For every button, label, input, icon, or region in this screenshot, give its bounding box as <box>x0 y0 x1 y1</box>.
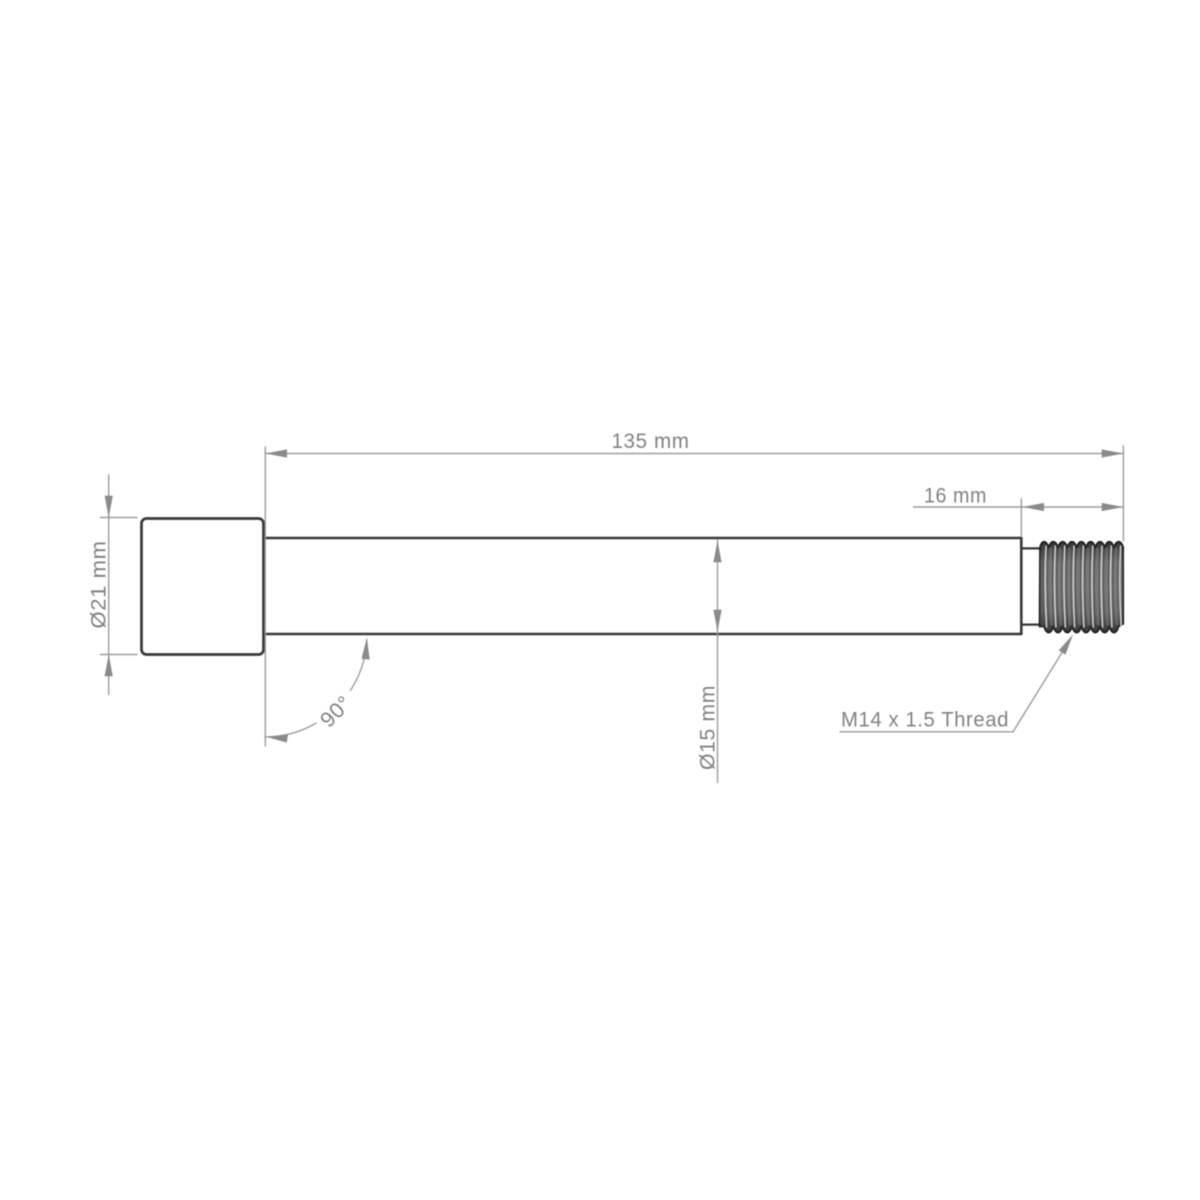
svg-text:M14 x 1.5 Thread: M14 x 1.5 Thread <box>841 708 1009 732</box>
svg-text:90°: 90° <box>315 691 356 732</box>
svg-text:Ø15 mm: Ø15 mm <box>696 685 720 770</box>
svg-text:16 mm: 16 mm <box>924 484 987 508</box>
svg-text:135 mm: 135 mm <box>612 429 690 453</box>
svg-text:Ø21 mm: Ø21 mm <box>87 541 111 629</box>
